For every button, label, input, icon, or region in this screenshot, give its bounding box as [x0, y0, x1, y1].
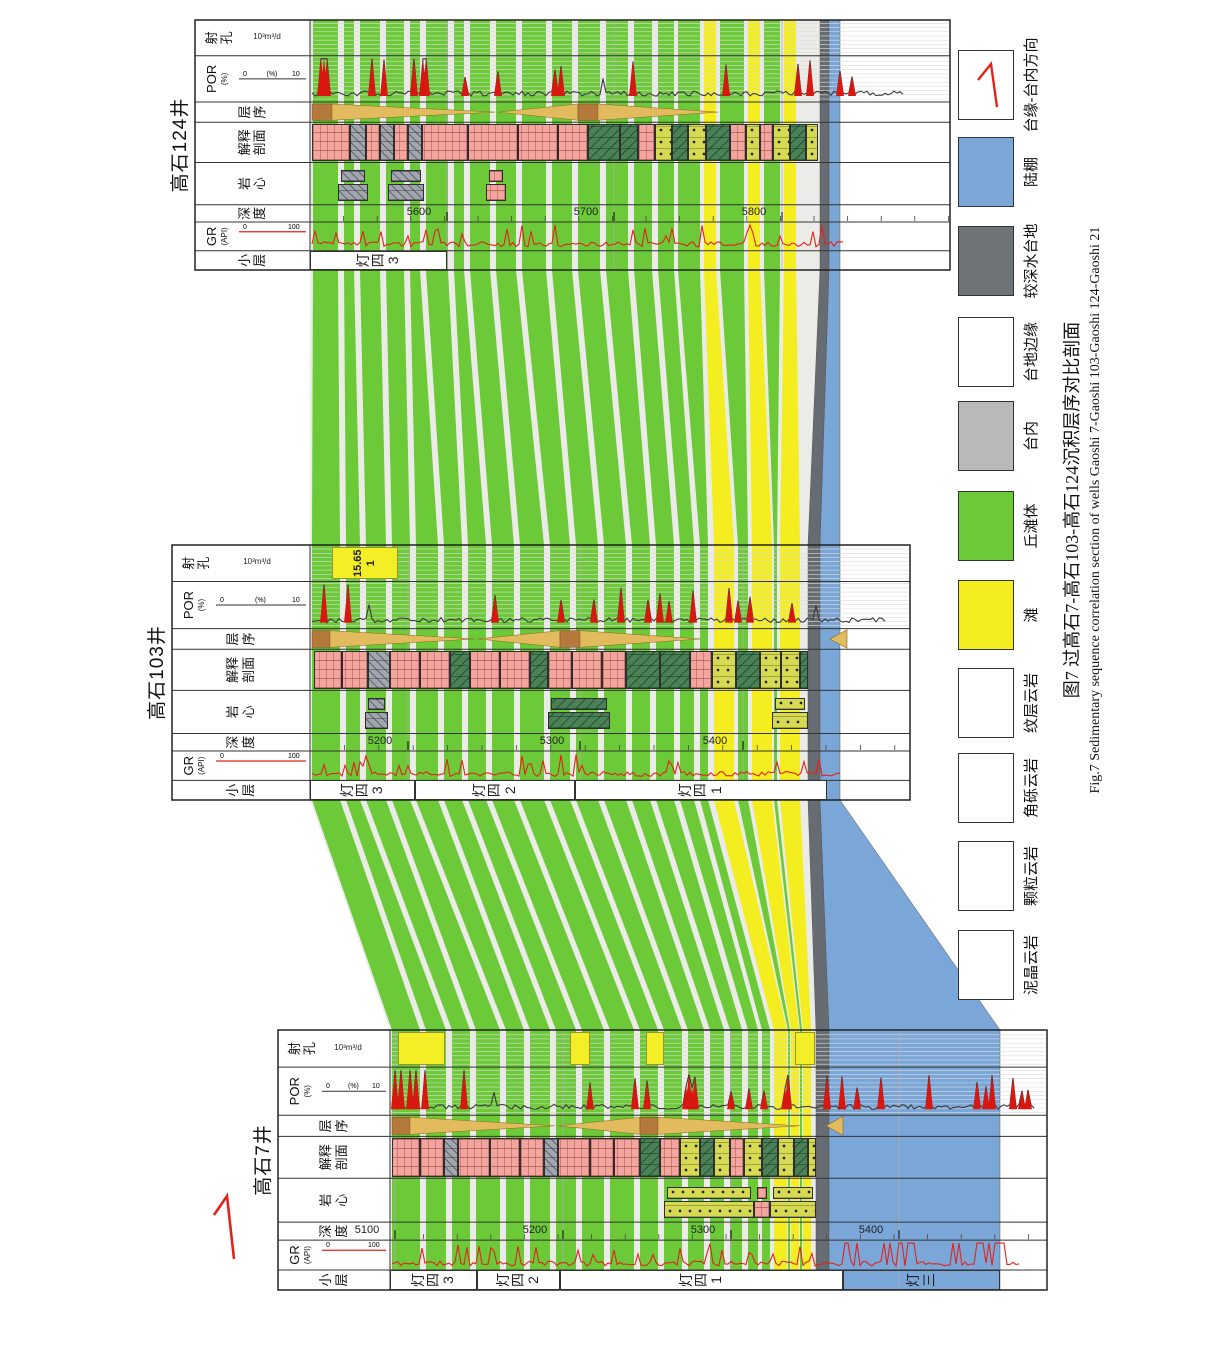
label-char: 深	[319, 1225, 333, 1238]
lithology-block	[420, 1138, 444, 1177]
label-char: 四	[694, 1273, 709, 1287]
label-char: 剖面	[253, 129, 267, 155]
core-block	[757, 1187, 767, 1199]
lithology-block	[444, 1138, 458, 1177]
label-char: 层	[253, 254, 267, 267]
track-header-yanxin: 岩心	[278, 1178, 390, 1222]
figure-caption-en: Fig.7 Sedimentary sequence correlation s…	[1088, 90, 1104, 930]
depth-label: 5300	[681, 1225, 725, 1237]
lithology-block	[746, 124, 760, 161]
lithology-block	[458, 1138, 490, 1177]
depth-label: 5200	[513, 1225, 557, 1237]
track-title: GR	[288, 1245, 303, 1265]
track-header-yanxin: 岩心	[195, 163, 310, 205]
label-char: 射	[182, 557, 196, 570]
figure-page: 01000(%)1001000(%)1001000(%)10 高石7井小层GR(…	[0, 0, 1209, 1349]
legend-item-yellow: 滩	[958, 578, 1041, 652]
depth-label: 5100	[345, 1225, 389, 1237]
label-char: 灯	[340, 783, 355, 797]
core-block	[338, 184, 368, 201]
label-char: 三	[922, 1273, 937, 1287]
label-char: 层	[319, 1119, 333, 1132]
label-char: 2	[503, 786, 518, 794]
legend-item-breccia: 角砾云岩	[958, 751, 1041, 825]
lithology-block	[736, 651, 760, 689]
figure-rotated-content: 01000(%)1001000(%)1001000(%)10 高石7井小层GR(…	[0, 0, 1209, 1349]
core-block	[551, 698, 607, 710]
lithology-block	[638, 124, 655, 161]
core-block	[486, 184, 506, 201]
label-char: 深	[238, 207, 252, 220]
lithology-block	[558, 124, 588, 161]
core-block	[773, 1187, 813, 1199]
label-char: 解释	[319, 1144, 333, 1170]
lithology-block	[368, 651, 390, 689]
track-header-xiaoceng: 小层	[278, 1270, 390, 1290]
layer-label-灯四2: 灯四2	[415, 780, 575, 800]
legend-item-micrite: 泥晶云岩	[958, 928, 1041, 1002]
lithology-block	[350, 124, 366, 161]
lithology-block	[422, 124, 468, 161]
lithology-block	[730, 124, 746, 161]
legend-swatch-breccia	[958, 753, 1014, 823]
depth-label: 5600	[397, 207, 441, 219]
label-char: 岩	[238, 177, 252, 190]
track-header-por: POR(%)	[172, 581, 310, 628]
legend-swatch-grain	[958, 841, 1014, 911]
track-unit-rotated: 10³m³/d	[240, 33, 294, 43]
legend-swatch-yellow	[958, 580, 1014, 650]
layer-label-灯三: 灯三	[843, 1270, 1000, 1290]
legend-swatch-arrow	[958, 50, 1014, 120]
legend-label: 较深水台地	[1020, 223, 1041, 298]
lithology-block	[626, 651, 660, 689]
label-char: 层	[226, 632, 240, 645]
label-char: 心	[335, 1194, 349, 1207]
legend-swatch-white	[958, 317, 1014, 387]
label-char: 四	[693, 783, 708, 797]
track-header-xiaoceng: 小层	[195, 251, 310, 270]
label-char: 层	[238, 106, 252, 119]
label-char: 序	[335, 1119, 349, 1132]
legend-label: 台地边缘	[1020, 322, 1041, 382]
lithology-block	[778, 1138, 794, 1177]
legend-item-grain: 颗粒云岩	[958, 839, 1041, 913]
legend-swatch-blue	[958, 137, 1014, 207]
label-char: 2	[526, 1276, 541, 1284]
core-block	[754, 1201, 770, 1218]
legend-item-white: 台地边缘	[958, 315, 1041, 389]
lithology-block	[390, 651, 420, 689]
label-char: 3	[386, 256, 401, 264]
track-unit: (%)	[198, 599, 207, 611]
lithology-block	[380, 124, 394, 161]
lithology-block	[518, 124, 558, 161]
label-char: 四	[511, 1273, 526, 1287]
track-header-shendu: 深度	[195, 205, 310, 222]
lithology-block	[760, 651, 781, 689]
track-header-por: POR(%)	[195, 56, 310, 102]
layer-label-灯四3: 灯四3	[390, 1270, 477, 1290]
legend-label: 台内	[1020, 421, 1041, 451]
depth-label: 5300	[530, 736, 574, 748]
lithology-block	[730, 1138, 744, 1177]
core-block	[772, 712, 808, 729]
track-header-cengxu: 层序	[278, 1115, 390, 1136]
perforation-interval	[570, 1032, 590, 1065]
depth-label: 5400	[693, 736, 737, 748]
lithology-block	[450, 651, 470, 689]
track-unit-rotated: 10³m³/d	[321, 1044, 375, 1054]
track-title: POR	[182, 591, 197, 619]
track-unit: (API)	[198, 757, 207, 775]
well-name-w103: 高石103井	[142, 545, 169, 800]
label-char: 剖面	[335, 1144, 349, 1170]
label-char: 小	[226, 784, 240, 797]
core-block	[388, 184, 424, 201]
core-block	[667, 1187, 751, 1199]
lithology-block	[468, 124, 518, 161]
legend-label: 角砾云岩	[1020, 758, 1041, 818]
lithology-block	[714, 1138, 730, 1177]
label-char: 层	[335, 1273, 349, 1286]
label-char: 度	[253, 207, 267, 220]
lithology-block	[806, 124, 818, 161]
lithology-block	[790, 124, 806, 161]
lithology-block	[680, 1138, 700, 1177]
lithology-block	[781, 651, 800, 689]
track-header-gr: GR(API)	[172, 751, 310, 780]
track-title: GR	[182, 756, 197, 776]
label-char: 孔	[197, 557, 211, 570]
lithology-block	[712, 651, 736, 689]
label-char: 四	[426, 1273, 441, 1287]
lithology-block	[314, 651, 342, 689]
lithology-block	[620, 124, 638, 161]
label-char: 3	[441, 1276, 456, 1284]
depth-label: 5400	[849, 1225, 893, 1237]
legend-item-arrow: 台缘-台内方向	[958, 48, 1041, 122]
core-block	[664, 1201, 754, 1218]
lithology-block	[588, 124, 620, 161]
core-block	[365, 712, 388, 729]
lithology-block	[744, 1138, 762, 1177]
core-block	[341, 170, 365, 182]
track-header-jieshi: 解释剖面	[195, 122, 310, 162]
core-block	[391, 170, 421, 182]
track-header-jieshi: 解释剖面	[172, 649, 310, 690]
lithology-block	[520, 1138, 544, 1177]
label-char: 心	[253, 177, 267, 190]
legend-item-green: 丘滩体	[958, 489, 1041, 563]
label-char: 小	[319, 1273, 333, 1286]
label-char: 岩	[226, 705, 240, 718]
label-char: 孔	[303, 1042, 317, 1055]
lithology-block	[530, 651, 548, 689]
lithology-block	[794, 1138, 808, 1177]
core-block	[548, 712, 610, 729]
layer-label-灯四3: 灯四3	[310, 780, 415, 800]
lithology-block	[800, 651, 808, 689]
lithology-block	[602, 651, 626, 689]
legend-label: 陆棚	[1020, 157, 1041, 187]
label-char: 四	[355, 783, 370, 797]
legend-label: 滩	[1020, 608, 1041, 623]
lithology-block	[572, 651, 602, 689]
label-char: 灯	[906, 1273, 921, 1287]
label-char: 度	[242, 736, 256, 749]
label-char: 1	[709, 786, 724, 794]
track-header-cengxu: 层序	[195, 102, 310, 122]
track-unit-rotated: 10³m³/d	[230, 558, 284, 568]
well-name-w7: 高石7井	[248, 1030, 275, 1290]
lithology-block	[762, 1138, 778, 1177]
perforation-interval	[646, 1032, 664, 1065]
lithology-block	[548, 651, 572, 689]
lithology-block	[640, 1138, 660, 1177]
figure-caption-zh: 图7 过高石7-高石103-高石124沉积层序对比剖面	[1058, 90, 1084, 930]
legend-swatch-micrite	[958, 930, 1014, 1000]
legend-label: 台缘-台内方向	[1020, 38, 1041, 133]
label-char: 灯	[679, 1273, 694, 1287]
legend-swatch-darkgray	[958, 226, 1014, 296]
label-char: 灯	[356, 253, 371, 267]
lithology-block	[394, 124, 408, 161]
lithology-block	[700, 1138, 714, 1177]
lithology-block	[660, 1138, 680, 1177]
label-char: 灯	[472, 783, 487, 797]
label-char: 深	[226, 736, 240, 749]
track-header-gr: GR(API)	[278, 1240, 390, 1270]
legend-swatch-green	[958, 491, 1014, 561]
label-char: 射	[205, 31, 219, 44]
legend-swatch-gray	[958, 401, 1014, 471]
depth-label: 5800	[732, 207, 776, 219]
label-char: 层	[242, 784, 256, 797]
legend-item-blue: 陆棚	[958, 135, 1041, 209]
legend-item-laminated: 纹层云岩	[958, 666, 1041, 740]
lithology-block	[558, 1138, 590, 1177]
track-unit: (%)	[304, 1085, 313, 1097]
layer-label-灯四1: 灯四1	[560, 1270, 843, 1290]
track-header-gr: GR(API)	[195, 222, 310, 251]
legend-swatch-laminated	[958, 668, 1014, 738]
core-block	[775, 698, 805, 710]
lithology-block	[342, 651, 368, 689]
lithology-block	[470, 651, 500, 689]
lithology-block	[706, 124, 730, 161]
label-char: 序	[253, 106, 267, 119]
legend-label: 颗粒云岩	[1020, 846, 1041, 906]
labels-overlay: 高石7井小层GR(API)深度岩心解释剖面层序POR(%)射孔10³m³/d51…	[0, 0, 1209, 1349]
lithology-block	[773, 124, 790, 161]
lithology-block	[688, 124, 706, 161]
track-title: GR	[205, 227, 220, 247]
track-unit: (API)	[304, 1246, 313, 1264]
track-unit: (%)	[221, 73, 230, 85]
lithology-block	[408, 124, 422, 161]
perforation-test-value: 15.65	[352, 549, 365, 577]
perforation-interval: 15.651	[332, 547, 398, 579]
track-title: POR	[205, 65, 220, 93]
track-header-yanxin: 岩心	[172, 690, 310, 733]
direction-arrow-icon	[959, 53, 1011, 119]
well-name-w124: 高石124井	[165, 20, 192, 270]
label-char: 岩	[319, 1194, 333, 1207]
lithology-block	[690, 651, 712, 689]
legend-label: 纹层云岩	[1020, 673, 1041, 733]
track-header-cengxu: 层序	[172, 629, 310, 650]
label-char: 灯	[678, 783, 693, 797]
label-char: 1	[709, 1276, 724, 1284]
track-header-por: POR(%)	[278, 1067, 390, 1115]
lithology-block	[660, 651, 690, 689]
lithology-block	[420, 651, 450, 689]
legend-label: 泥晶云岩	[1020, 935, 1041, 995]
core-block	[368, 698, 385, 710]
lithology-block	[500, 651, 530, 689]
lithology-block	[312, 124, 350, 161]
lithology-block	[366, 124, 380, 161]
lithology-block	[544, 1138, 558, 1177]
label-char: 解释	[238, 129, 252, 155]
lithology-block	[808, 1138, 816, 1177]
label-char: 四	[487, 783, 502, 797]
depth-label: 5200	[358, 736, 402, 748]
track-title: POR	[288, 1077, 303, 1105]
label-char: 解释	[226, 657, 240, 683]
lithology-block	[392, 1138, 420, 1177]
legend-label: 丘滩体	[1020, 504, 1041, 549]
core-block	[770, 1201, 816, 1218]
label-char: 剖面	[242, 657, 256, 683]
label-char: 序	[242, 632, 256, 645]
label-char: 灯	[496, 1273, 511, 1287]
lithology-block	[760, 124, 773, 161]
label-char: 心	[242, 705, 256, 718]
lithology-block	[590, 1138, 614, 1177]
lithology-block	[655, 124, 672, 161]
lithology-block	[614, 1138, 640, 1177]
perforation-interval	[398, 1032, 445, 1065]
label-char: 灯	[411, 1273, 426, 1287]
layer-label-灯四1: 灯四1	[575, 780, 827, 800]
layer-label-灯四3: 灯四3	[310, 251, 447, 270]
track-unit: (API)	[221, 227, 230, 245]
legend-item-gray: 台内	[958, 399, 1041, 473]
perforation-interval	[795, 1032, 815, 1065]
layer-label-灯四2: 灯四2	[477, 1270, 560, 1290]
label-char: 小	[238, 254, 252, 267]
track-header-jieshi: 解释剖面	[278, 1136, 390, 1178]
track-header-shendu: 深度	[172, 733, 310, 751]
track-header-xiaoceng: 小层	[172, 780, 310, 800]
label-char: 射	[288, 1042, 302, 1055]
label-char: 孔	[220, 31, 234, 44]
lithology-block	[490, 1138, 520, 1177]
label-char: 四	[371, 253, 386, 267]
depth-label: 5700	[564, 207, 608, 219]
perforation-interval-no: 1	[365, 560, 378, 566]
core-block	[489, 170, 503, 182]
legend-item-darkgray: 较深水台地	[958, 224, 1041, 298]
label-char: 3	[370, 786, 385, 794]
lithology-block	[672, 124, 688, 161]
